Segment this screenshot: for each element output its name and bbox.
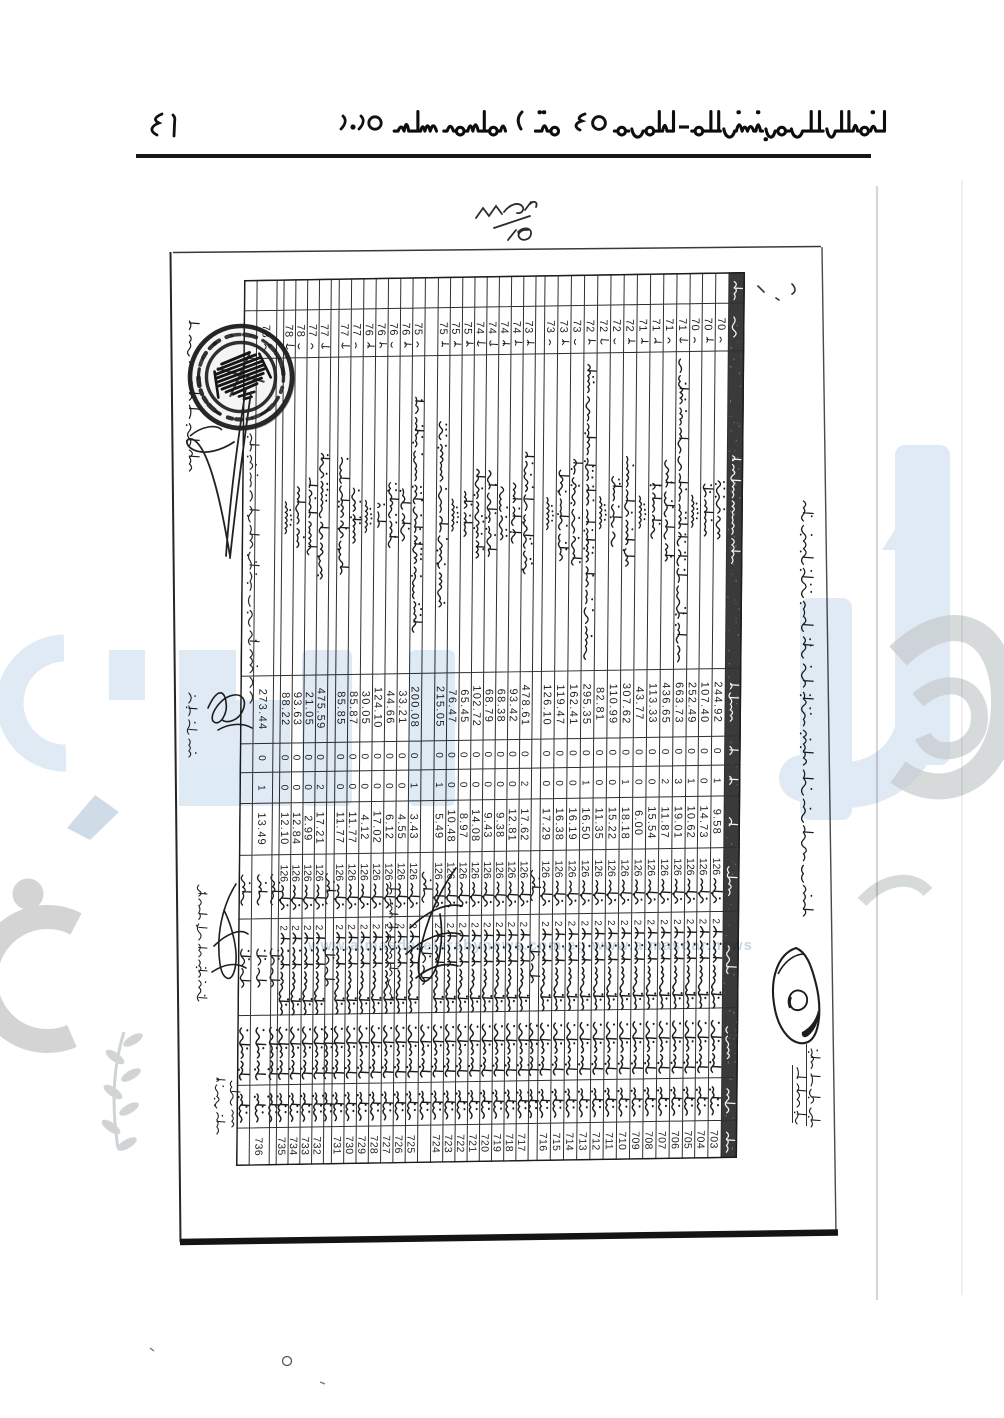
svg-text:www.almasdarelarabynews.com.eg: www.almasdarelarabynews.com.eg www.almas… — [307, 938, 753, 954]
